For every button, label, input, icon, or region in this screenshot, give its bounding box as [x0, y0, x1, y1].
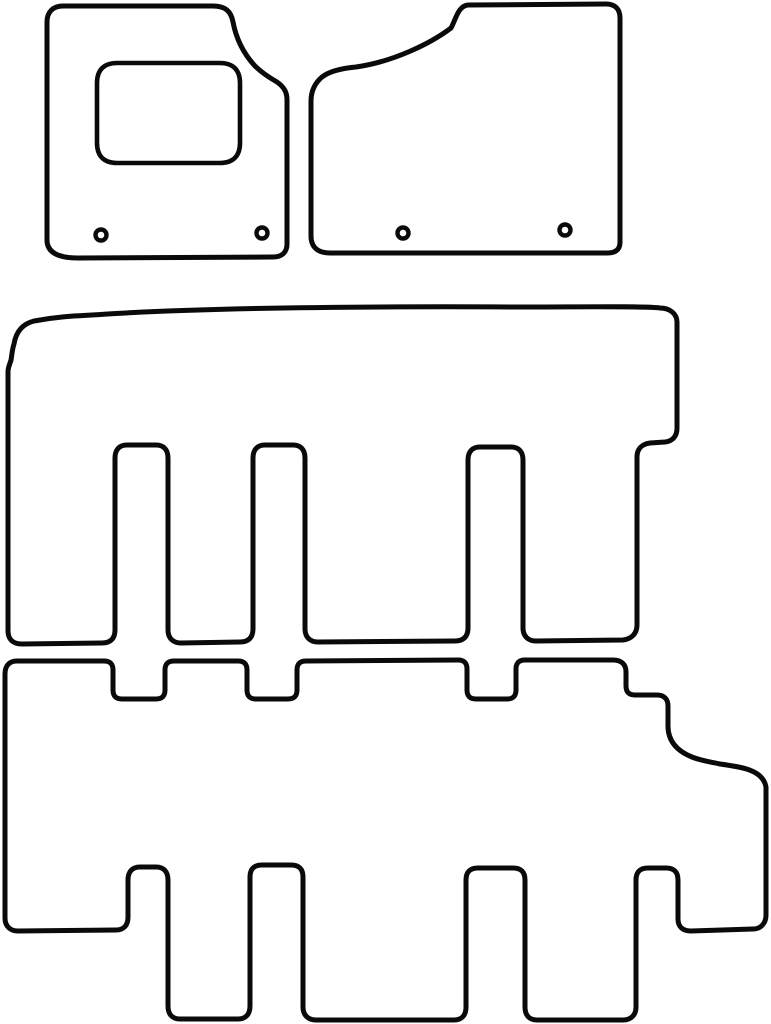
front-passenger-mat-outline [311, 4, 620, 253]
front-driver-mat-grommet-left [96, 230, 107, 241]
front-driver-mat-heel-pad [97, 63, 240, 163]
rear-row-mat-outline [5, 660, 766, 1020]
front-driver-mat-grommet-right [257, 228, 268, 239]
page [0, 0, 771, 1024]
car-mat-set-template-diagram [0, 0, 771, 1024]
front-passenger-mat-grommet-left [398, 228, 409, 239]
middle-row-mat-outline [8, 307, 677, 644]
front-passenger-mat-grommet-right [560, 225, 571, 236]
